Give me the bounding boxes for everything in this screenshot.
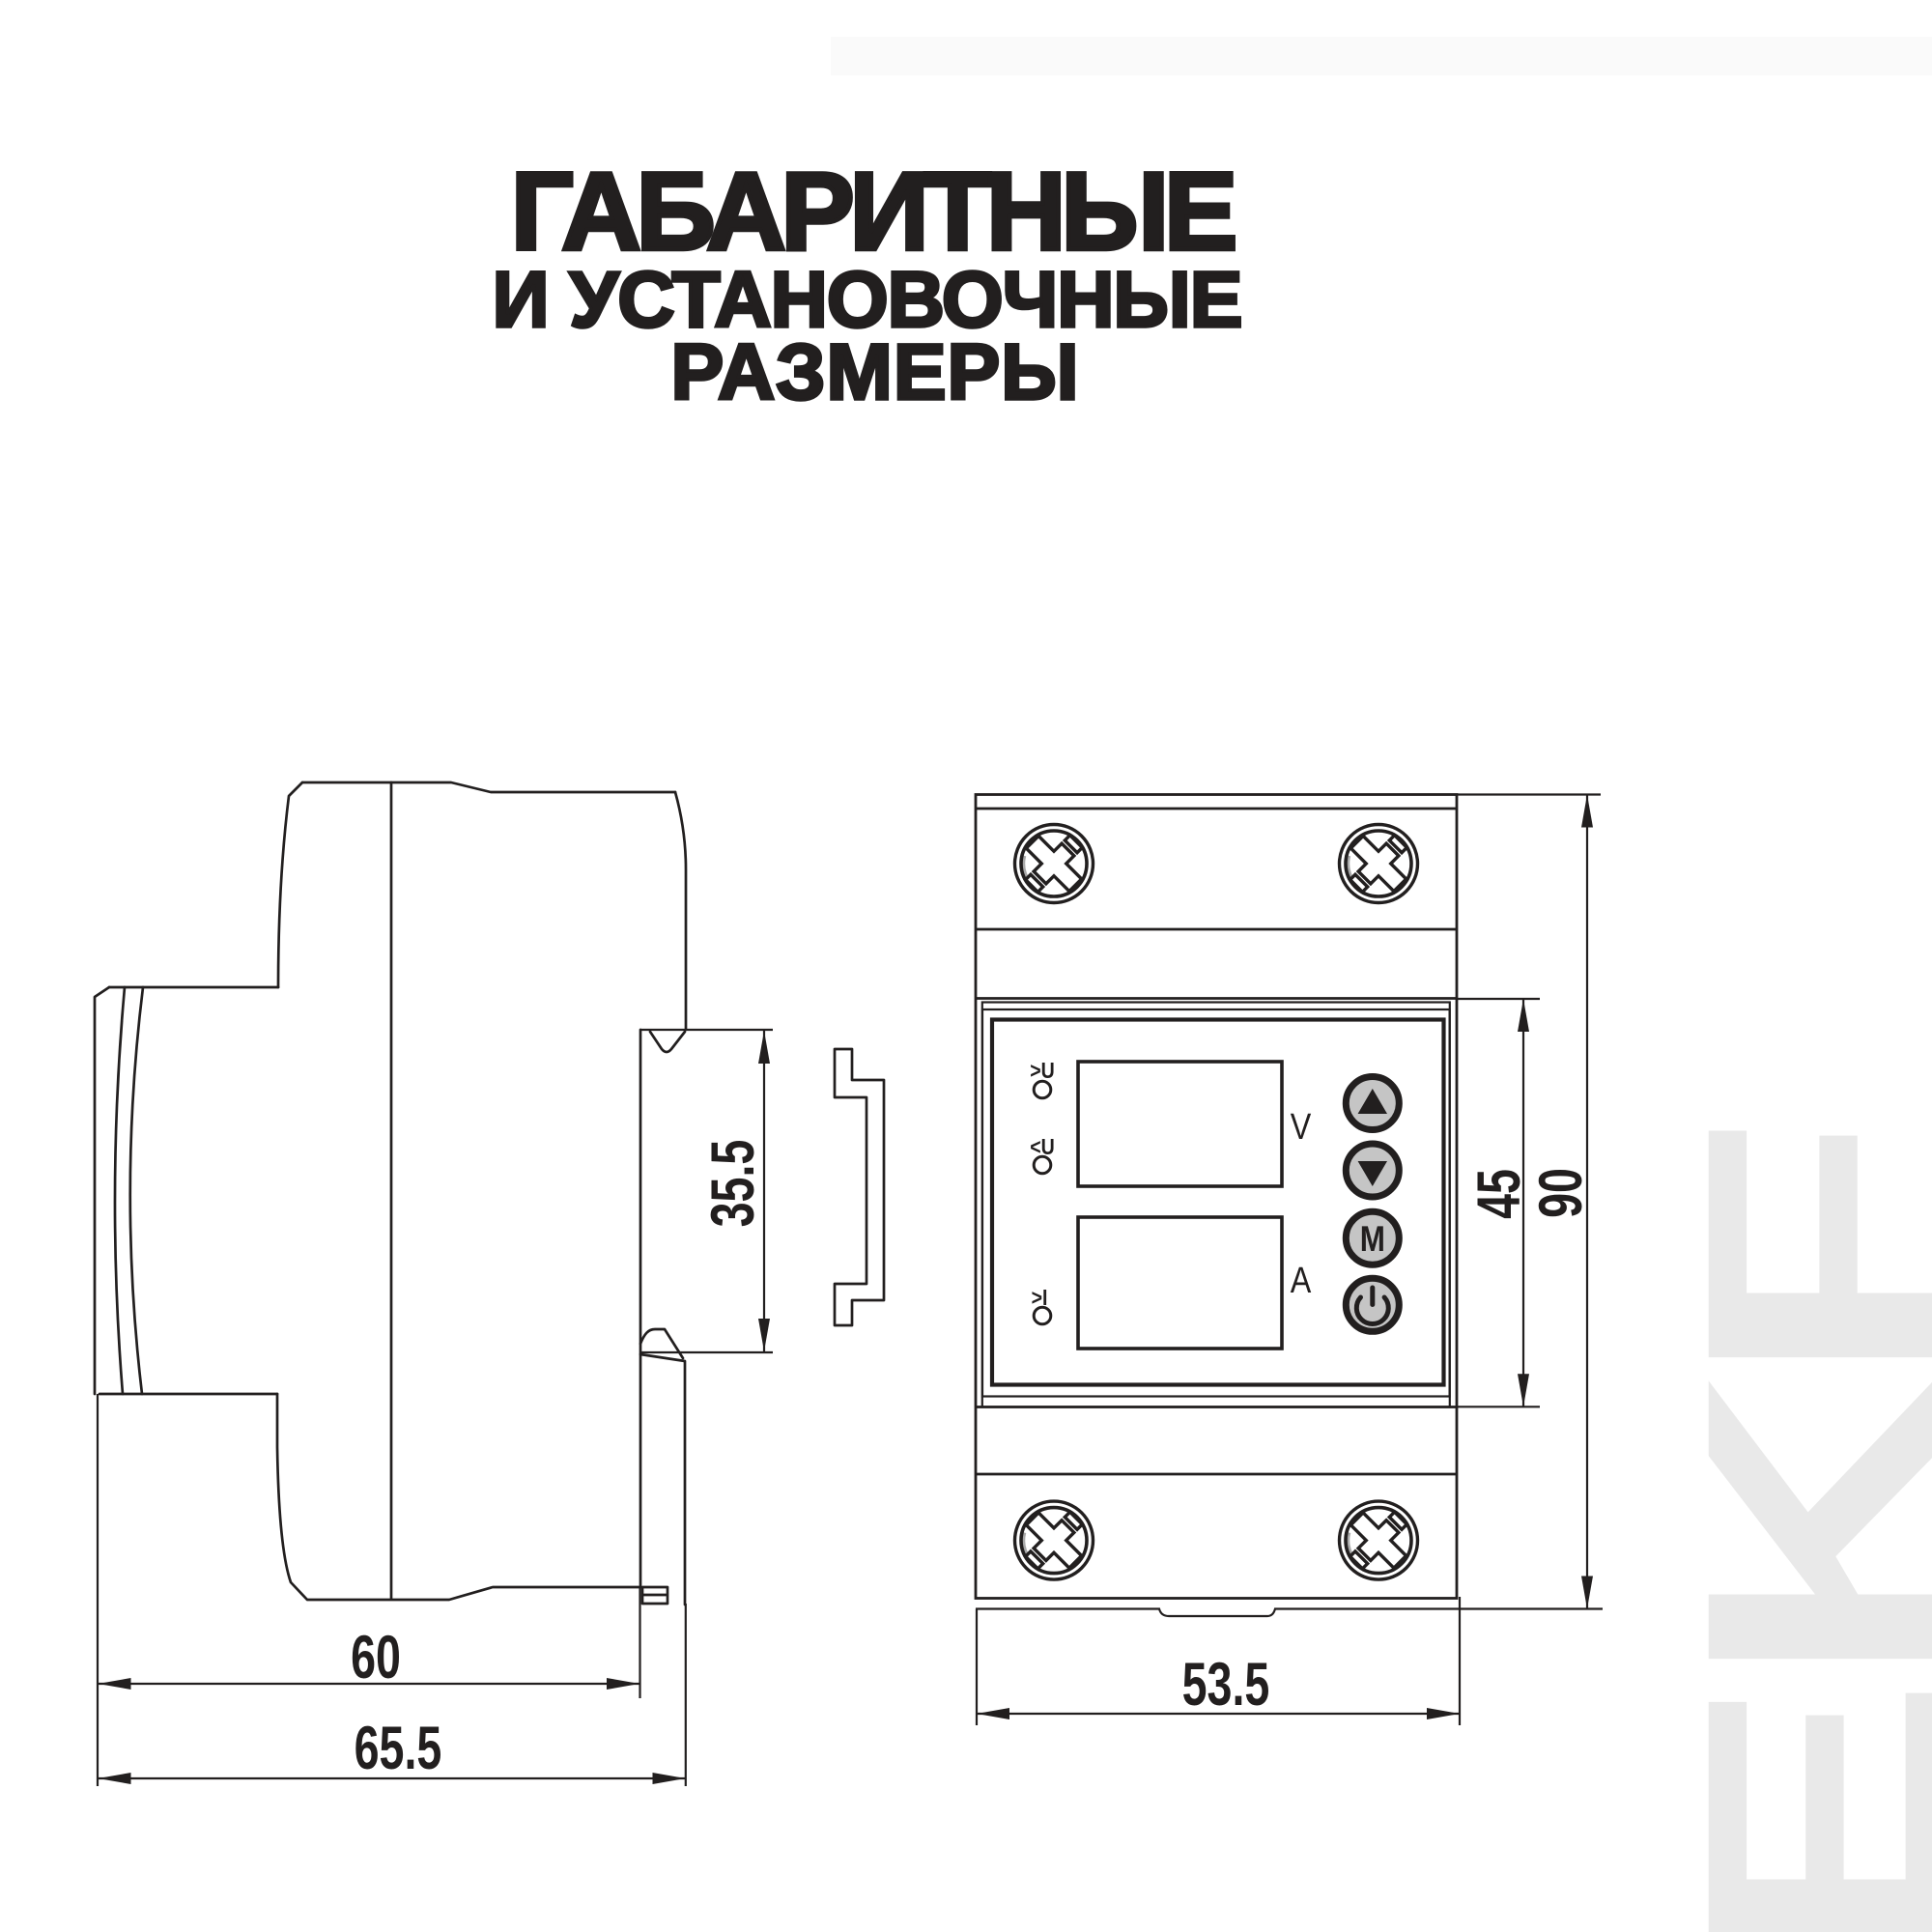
svg-text:<U: <U — [1030, 1135, 1055, 1160]
svg-text:90: 90 — [1526, 1168, 1594, 1218]
svg-text:ГАБАРИТНЫЕ: ГАБАРИТНЫЕ — [511, 151, 1234, 273]
svg-text:РАЗМЕРЫ: РАЗМЕРЫ — [670, 328, 1079, 416]
svg-text:A: A — [1291, 1261, 1312, 1301]
svg-text:35.5: 35.5 — [698, 1140, 766, 1228]
svg-text:65.5: 65.5 — [355, 1714, 442, 1781]
svg-text:M: M — [1360, 1220, 1385, 1260]
svg-text:60: 60 — [351, 1623, 401, 1690]
svg-text:K: K — [1634, 1366, 1932, 1689]
svg-text:>U: >U — [1030, 1059, 1055, 1084]
svg-text:45: 45 — [1464, 1169, 1532, 1219]
svg-text:F: F — [1634, 1115, 1932, 1387]
svg-text:53.5: 53.5 — [1182, 1650, 1270, 1718]
svg-text:>I: >I — [1032, 1286, 1048, 1311]
svg-text:E: E — [1634, 1676, 1932, 1932]
svg-text:V: V — [1291, 1107, 1312, 1148]
